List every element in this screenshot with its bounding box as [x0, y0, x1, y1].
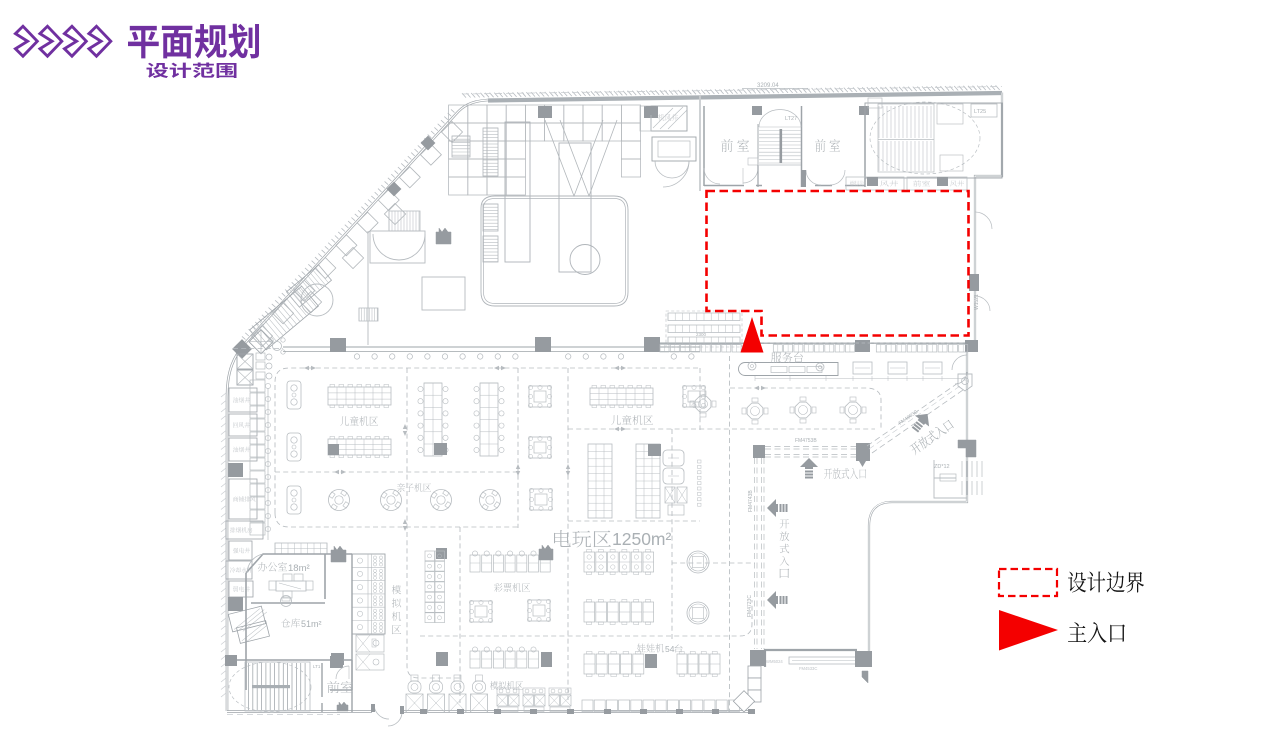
svg-text:FM4903C: FM4903C [898, 409, 920, 427]
svg-text:W1521: W1521 [974, 294, 980, 310]
svg-text:1250m²: 1250m² [612, 529, 672, 549]
svg-text:FM4753B: FM4753B [795, 438, 817, 444]
svg-text:FM4533C: FM4533C [799, 666, 817, 671]
svg-text:3209.04: 3209.04 [757, 83, 779, 89]
svg-text:ZD*12: ZD*12 [934, 464, 950, 470]
svg-text:LT1: LT1 [313, 664, 321, 669]
svg-text:FM4743B: FM4743B [748, 490, 754, 512]
svg-text:LT25: LT25 [974, 109, 986, 115]
svg-text:51m²: 51m² [301, 619, 322, 629]
svg-text:18m²: 18m² [288, 563, 310, 574]
svg-text:FM4723C: FM4723C [747, 595, 753, 617]
svg-text:2300: 2300 [696, 332, 707, 337]
svg-text:WM5024: WM5024 [766, 659, 783, 664]
svg-text:LT27: LT27 [785, 116, 797, 122]
svg-text:54: 54 [665, 644, 675, 654]
